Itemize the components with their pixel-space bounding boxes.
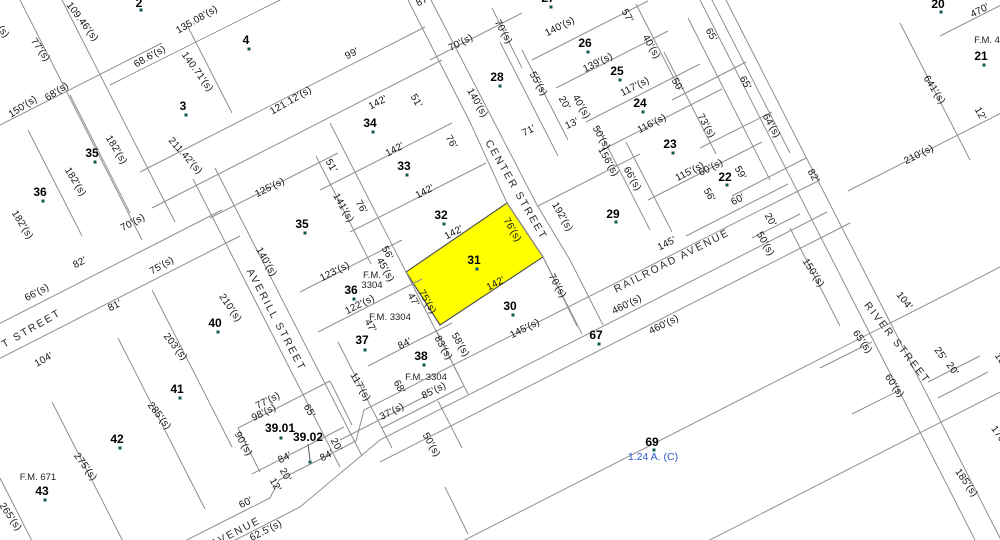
parcel-dot xyxy=(364,349,367,352)
parcel-number: 25 xyxy=(610,64,623,78)
parcel-dot xyxy=(512,314,515,317)
parcel-dot xyxy=(185,114,188,117)
parcel-number: 23 xyxy=(663,137,676,151)
parcel-dot xyxy=(309,461,312,464)
parcel-dot xyxy=(642,111,645,114)
parcel-dot xyxy=(353,298,356,301)
parcel-dot xyxy=(423,364,426,367)
parcel-dot xyxy=(476,268,479,271)
parcel-dot xyxy=(372,131,375,134)
parcel-number: 32 xyxy=(434,208,447,222)
parcel-number: 3 xyxy=(180,99,187,113)
parcel-dot xyxy=(615,221,618,224)
parcel-number: 36 xyxy=(344,283,357,297)
parcel-number: 20 xyxy=(931,0,944,11)
parcel-dot xyxy=(940,11,943,14)
parcel-number: 34 xyxy=(363,116,376,130)
parcel-dot xyxy=(140,9,143,12)
parcel-dot xyxy=(304,232,307,235)
leader-line-39-02 xyxy=(308,444,310,460)
parcel-number: 27 xyxy=(541,0,554,5)
parcel-number: 24 xyxy=(633,96,646,110)
parcel-dot xyxy=(550,6,553,9)
parcel-dot xyxy=(280,437,283,440)
parcel-number: 22 xyxy=(718,170,731,184)
parcel-number: 29 xyxy=(606,207,619,221)
parcel-dot xyxy=(726,184,729,187)
parcel-dot xyxy=(587,51,590,54)
parcel-number: 35 xyxy=(85,146,98,160)
parcel-number: 35 xyxy=(295,217,308,231)
parcel-dot xyxy=(94,161,97,164)
parcel-dot xyxy=(44,499,47,502)
parcel-number: 67 xyxy=(589,328,602,342)
parcel-dot xyxy=(443,223,446,226)
fm-reference: F.M. 3304 xyxy=(361,271,382,291)
parcel-number: 69 xyxy=(645,435,658,449)
parcel-dot xyxy=(619,79,622,82)
parcel-number: 33 xyxy=(397,159,410,173)
parcel-dot xyxy=(119,447,122,450)
parcel-number: 39.02 xyxy=(293,430,323,444)
parcel-dot xyxy=(598,343,601,346)
parcel-number: 28 xyxy=(490,70,503,84)
parcel-number: 39.01 xyxy=(265,421,295,435)
parcel-dot xyxy=(406,174,409,177)
parcel-dot xyxy=(179,397,182,400)
fm-reference: F.M. 3304 xyxy=(405,373,447,383)
parcel-number: 31 xyxy=(467,253,480,267)
area-note: 1.24 A. (C) xyxy=(628,451,678,463)
parcel-number: 43 xyxy=(35,484,48,498)
parcel-dot xyxy=(248,48,251,51)
parcel-number: 4 xyxy=(243,33,250,47)
parcel-dot xyxy=(672,152,675,155)
fm-reference: F.M. 4 xyxy=(974,36,1000,46)
parcel-number: 38 xyxy=(414,349,427,363)
parcel-number: 30 xyxy=(503,299,516,313)
parcel-number: 37 xyxy=(355,333,368,347)
map-canvas[interactable]: (s)109.46'(s)77'(s)135.08'(s)68.6'(s)140… xyxy=(0,0,1000,540)
parcel-number: 21 xyxy=(974,49,987,63)
parcel-number: 42 xyxy=(110,432,123,446)
parcel-dot xyxy=(983,64,986,67)
parcel-number: 40 xyxy=(208,316,221,330)
parcel-number: 36 xyxy=(33,185,46,199)
parcel-dot xyxy=(42,200,45,203)
parcel-dot xyxy=(217,331,220,334)
parcel-dot xyxy=(499,85,502,88)
fm-reference: F.M. 3304 xyxy=(369,313,411,323)
fm-reference: F.M. 671 xyxy=(20,473,56,483)
parcel-number: 41 xyxy=(170,382,183,396)
parcel-number: 26 xyxy=(578,36,591,50)
